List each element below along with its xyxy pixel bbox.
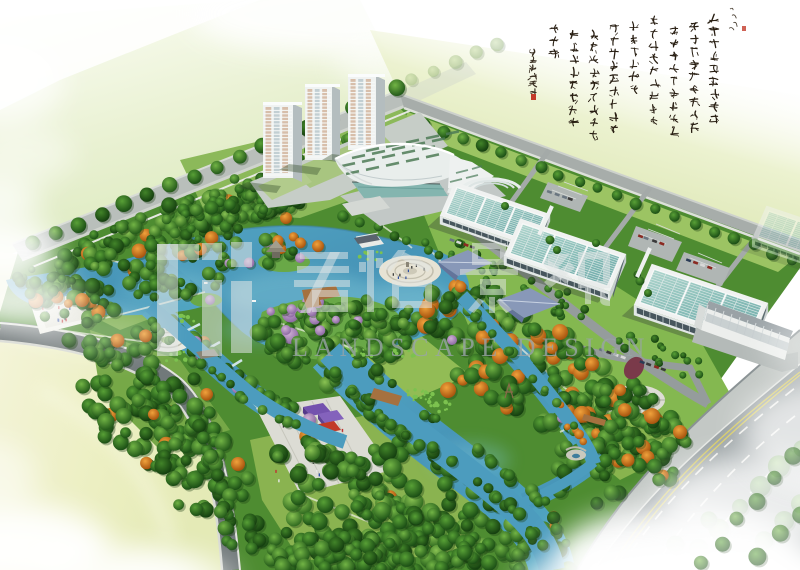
svg-text:LANDSCAPE DESIGN: LANDSCAPE DESIGN xyxy=(292,333,651,362)
